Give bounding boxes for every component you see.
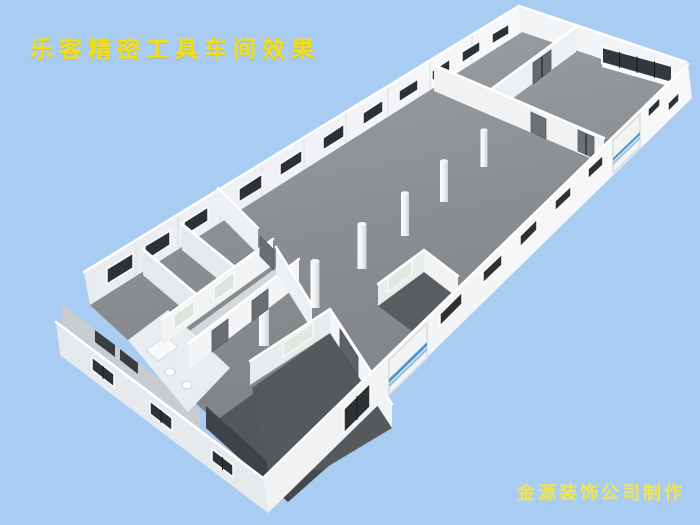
support-column [440, 159, 448, 202]
support-column [481, 128, 488, 167]
workshop-3d-rendering: 乐客精密工具车间效果 金源装饰公司制作 [0, 0, 700, 525]
support-column [358, 222, 367, 269]
support-column [401, 191, 409, 236]
credit-text: 金源装饰公司制作 [517, 479, 685, 505]
title-text: 乐客精密工具车间效果 [30, 30, 320, 64]
support-column [311, 259, 320, 308]
building-illustration [0, 0, 700, 525]
